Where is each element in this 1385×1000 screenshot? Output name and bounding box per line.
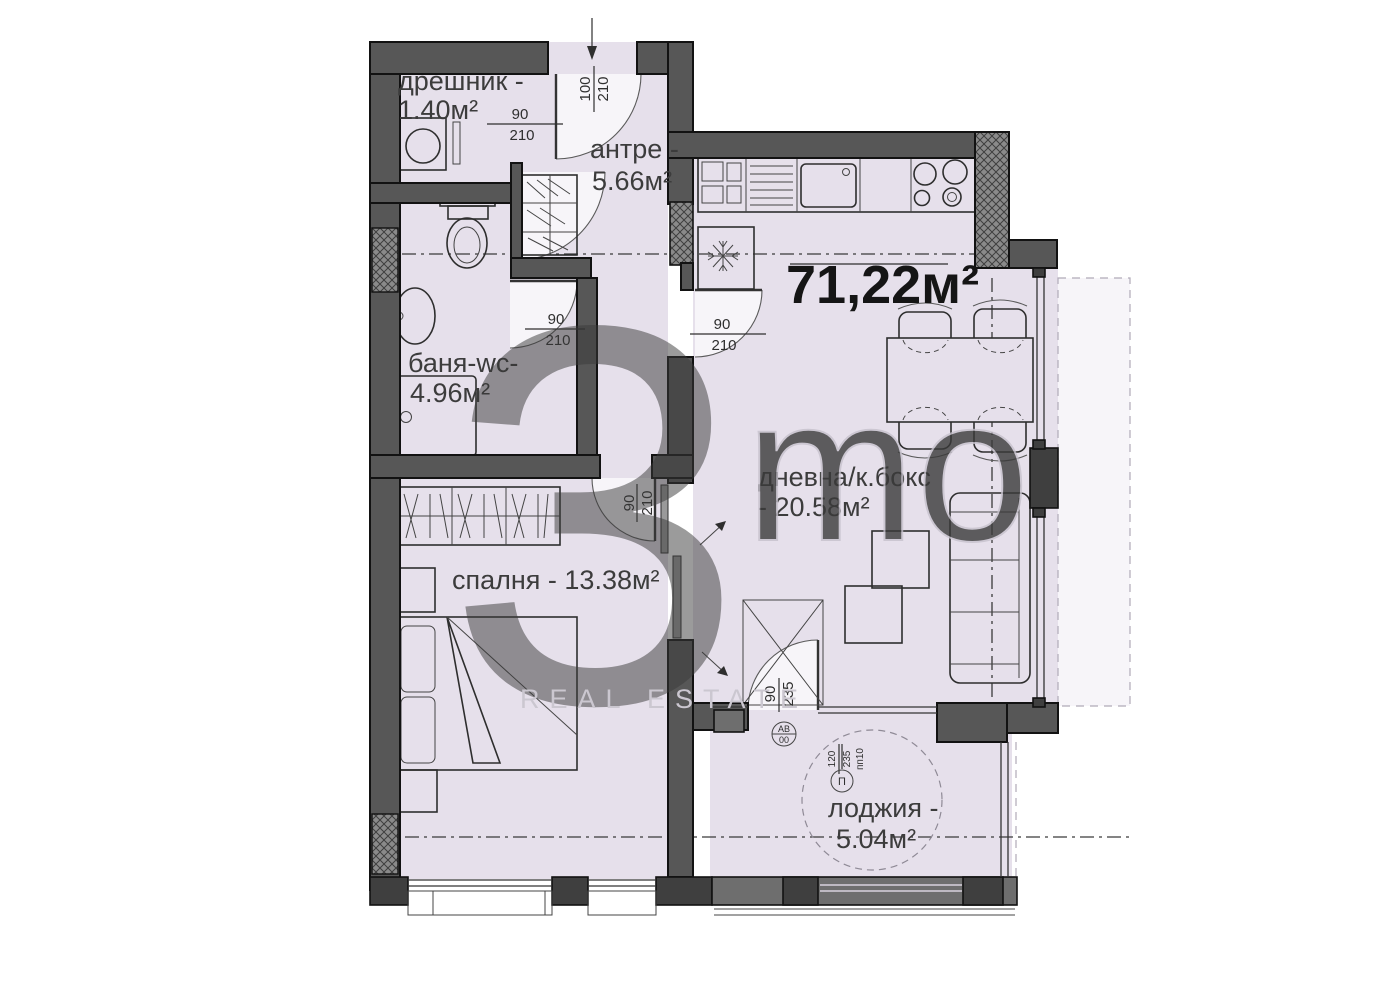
floor-plan-canvas: вб К	[0, 0, 1385, 1000]
room-area-antre: 5.66м²	[592, 166, 672, 196]
floor-plan-page: вб К	[0, 0, 1385, 1000]
svg-text:210: 210	[509, 127, 534, 144]
svg-text:00: 00	[779, 735, 789, 745]
watermark-letters: mo	[745, 355, 1030, 584]
svg-text:210: 210	[595, 76, 612, 101]
room-label-antre: антре -	[590, 134, 679, 164]
room-area-closet: 1.40м²	[398, 95, 478, 125]
svg-text:235: 235	[842, 750, 853, 767]
room-label-closet: дрешник -	[398, 66, 524, 96]
svg-text:АВ: АВ	[778, 724, 790, 734]
watermark-caption: REAL ESTATE	[520, 684, 808, 714]
total-area-label: 71,22м²	[786, 255, 979, 315]
panel-marker: П	[838, 776, 846, 788]
watermark-digit: 3	[445, 214, 745, 817]
svg-text:120: 120	[827, 750, 838, 767]
axis-marker-circle: АВ 00	[772, 722, 796, 746]
svg-text:100: 100	[577, 76, 594, 101]
room-area-loggia: 5.04м²	[836, 824, 916, 854]
svg-text:90: 90	[512, 106, 529, 123]
svg-text:пп10: пп10	[855, 748, 866, 770]
room-label-loggia: лоджия -	[828, 793, 939, 823]
facade-offset-zone	[1058, 278, 1130, 706]
